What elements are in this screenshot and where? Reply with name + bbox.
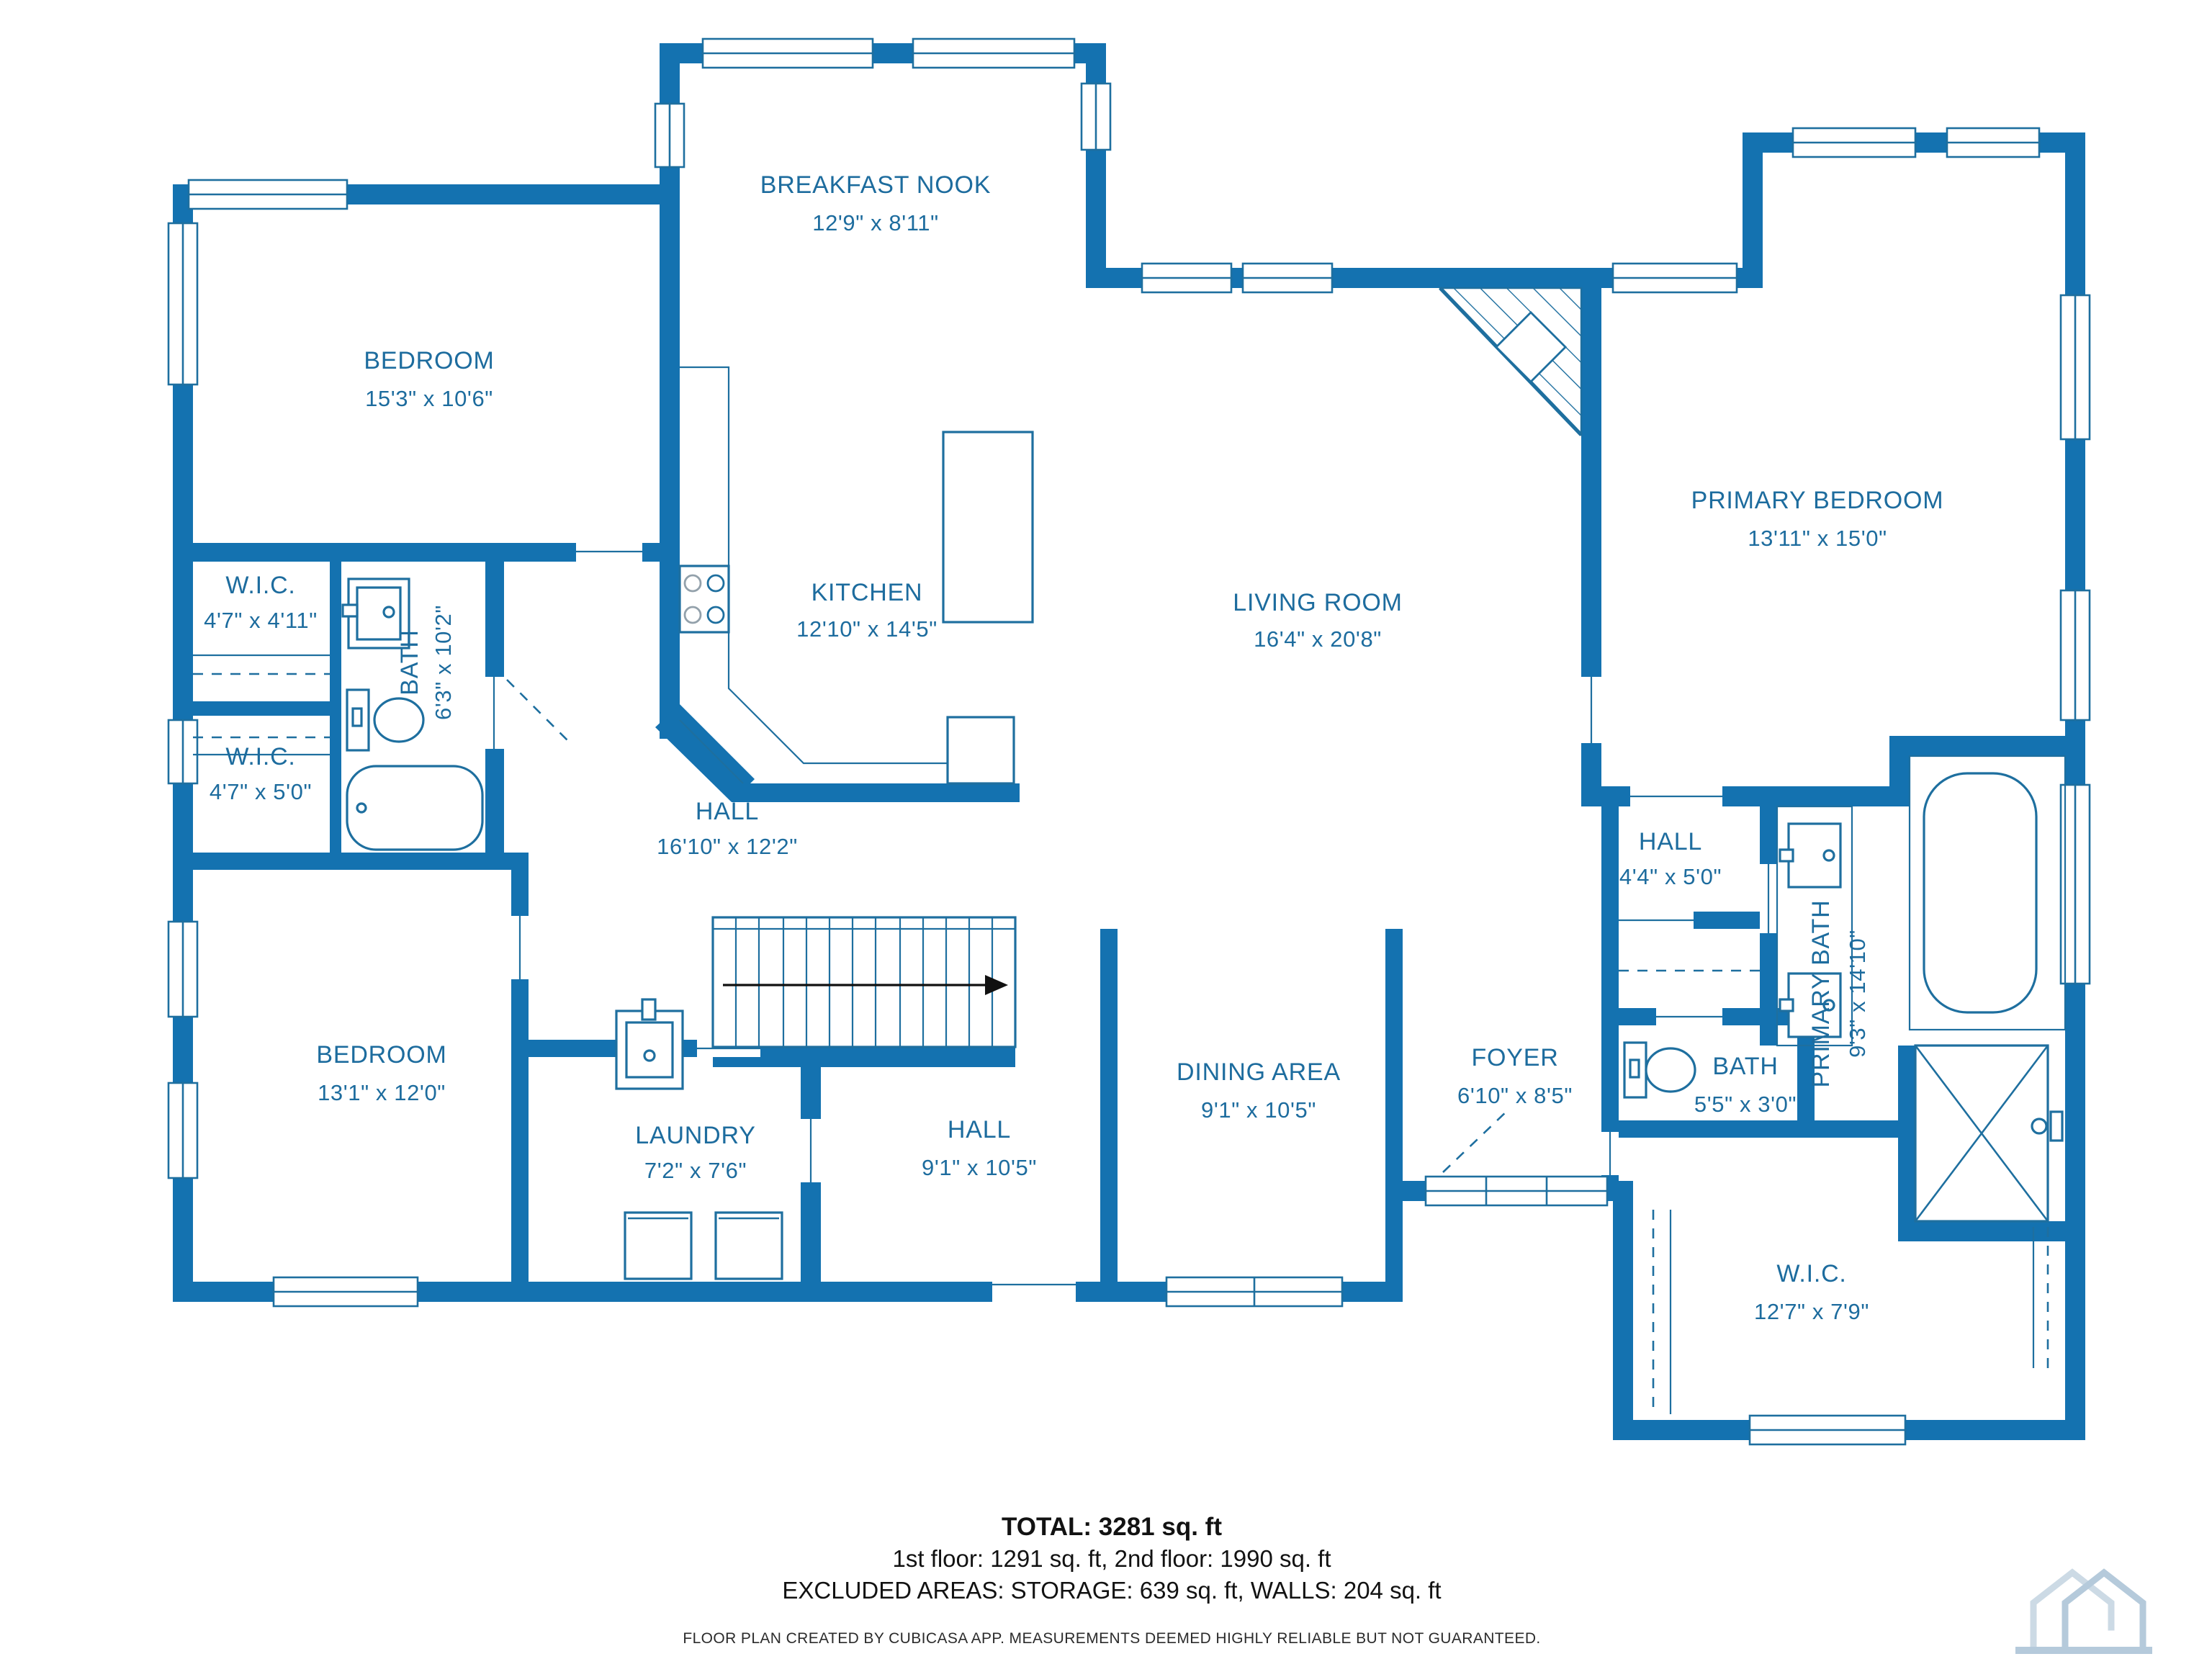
room-dims-living-room: 16'4" x 20'8" (1254, 626, 1382, 652)
room-dims-hall-lower: 9'1" x 10'5" (922, 1155, 1037, 1180)
dryer-icon (716, 1213, 782, 1279)
room-dims-bedroom-lower: 13'1" x 12'0" (318, 1080, 446, 1105)
small-bath-fixtures (1624, 1043, 1695, 1097)
kitchen-fixtures (680, 367, 1033, 783)
summary-floors: 1st floor: 1291 sq. ft, 2nd floor: 1990 … (892, 1545, 1331, 1572)
summary-dis claimer: FLOOR PLAN CREATED BY CUBICASA APP. MEAS… (683, 1630, 1540, 1647)
summary-excluded: EXCLUDED AREAS: STORAGE: 639 sq. ft, WAL… (782, 1577, 1441, 1604)
room-label-wic-primary: W.I.C. (1776, 1260, 1846, 1287)
room-label-dining-area: DINING AREA (1177, 1058, 1341, 1086)
room-dims-hall-center: 16'10" x 12'2" (657, 834, 798, 859)
bathtub-icon (347, 766, 482, 850)
shower-icon (1915, 1046, 2062, 1221)
toilet-icon (1624, 1043, 1695, 1097)
room-dims-wic-lower: 4'7" x 5'0" (210, 779, 312, 804)
room-dims-foyer: 6'10" x 8'5" (1457, 1083, 1573, 1108)
room-label-bath-hall: BATH (396, 629, 423, 695)
washer-icon (625, 1213, 691, 1279)
room-label-bath-small: BATH (1712, 1053, 1778, 1080)
sink-icon (1780, 824, 1840, 887)
room-label-kitchen: KITCHEN (811, 579, 923, 606)
room-dims-bath-small: 5'5" x 3'0" (1694, 1092, 1797, 1117)
room-dims-dining-area: 9'1" x 10'5" (1201, 1097, 1316, 1123)
room-label-foyer: FOYER (1471, 1044, 1558, 1071)
room-dims-laundry: 7'2" x 7'6" (644, 1158, 747, 1183)
toilet-icon (347, 690, 423, 750)
hall-bath-fixtures (343, 579, 482, 850)
room-dims-breakfast-nook: 12'9" x 8'11" (812, 210, 939, 235)
room-dims-wic-upper: 4'7" x 4'11" (204, 608, 318, 633)
room-label-hall-primary: HALL (1639, 828, 1702, 855)
room-dims-bedroom-upper: 15'3" x 10'6" (365, 386, 493, 411)
room-label-hall-lower: HALL (948, 1116, 1011, 1143)
laundry-sink-icon (616, 999, 683, 1089)
bathtub-icon (1924, 773, 2036, 1012)
room-label-breakfast-nook: BREAKFAST NOOK (760, 171, 991, 199)
kitchen-island (943, 432, 1033, 622)
summary-block: TOTAL: 3281 sq. ft 1st floor: 1291 sq. f… (683, 1513, 1540, 1647)
room-label-laundry: LAUNDRY (635, 1122, 755, 1149)
room-label-wic-upper: W.I.C. (225, 572, 295, 599)
room-dims-kitchen: 12'10" x 14'5" (796, 616, 938, 642)
room-dims-bath-hall: 6'3" x 10'2" (431, 605, 456, 720)
floor-plan-canvas: BREAKFAST NOOK 12'9" x 8'11" BEDROOM 15'… (0, 0, 2212, 1659)
room-label-hall-center: HALL (696, 798, 759, 825)
staircase (713, 917, 1015, 1047)
cubicasa-logo-icon (2019, 1573, 2149, 1650)
dishwasher-icon (948, 717, 1014, 783)
room-label-primary-bedroom: PRIMARY BEDROOM (1691, 487, 1944, 514)
room-labels: BREAKFAST NOOK 12'9" x 8'11" BEDROOM 15'… (204, 171, 1943, 1324)
room-label-bedroom-upper: BEDROOM (364, 347, 494, 374)
room-label-primary-bath: PRIMARY BATH (1807, 900, 1835, 1088)
walls (173, 43, 2085, 1440)
room-dims-wic-primary: 12'7" x 7'9" (1754, 1299, 1869, 1324)
stove-icon (680, 566, 729, 632)
room-label-living-room: LIVING ROOM (1233, 589, 1403, 616)
room-dims-primary-bath: 9'3" x 14'10" (1845, 930, 1870, 1058)
room-dims-primary-bedroom: 13'11" x 15'0" (1748, 526, 1887, 551)
under-stair-storage (1440, 288, 1581, 435)
room-label-bedroom-lower: BEDROOM (316, 1041, 446, 1069)
room-label-wic-lower: W.I.C. (225, 743, 295, 770)
floor-plan: BREAKFAST NOOK 12'9" x 8'11" BEDROOM 15'… (0, 0, 2212, 1659)
summary-total: TOTAL: 3281 sq. ft (1002, 1513, 1222, 1541)
windows (168, 39, 2090, 1444)
room-dims-hall-primary: 4'4" x 5'0" (1619, 864, 1722, 889)
